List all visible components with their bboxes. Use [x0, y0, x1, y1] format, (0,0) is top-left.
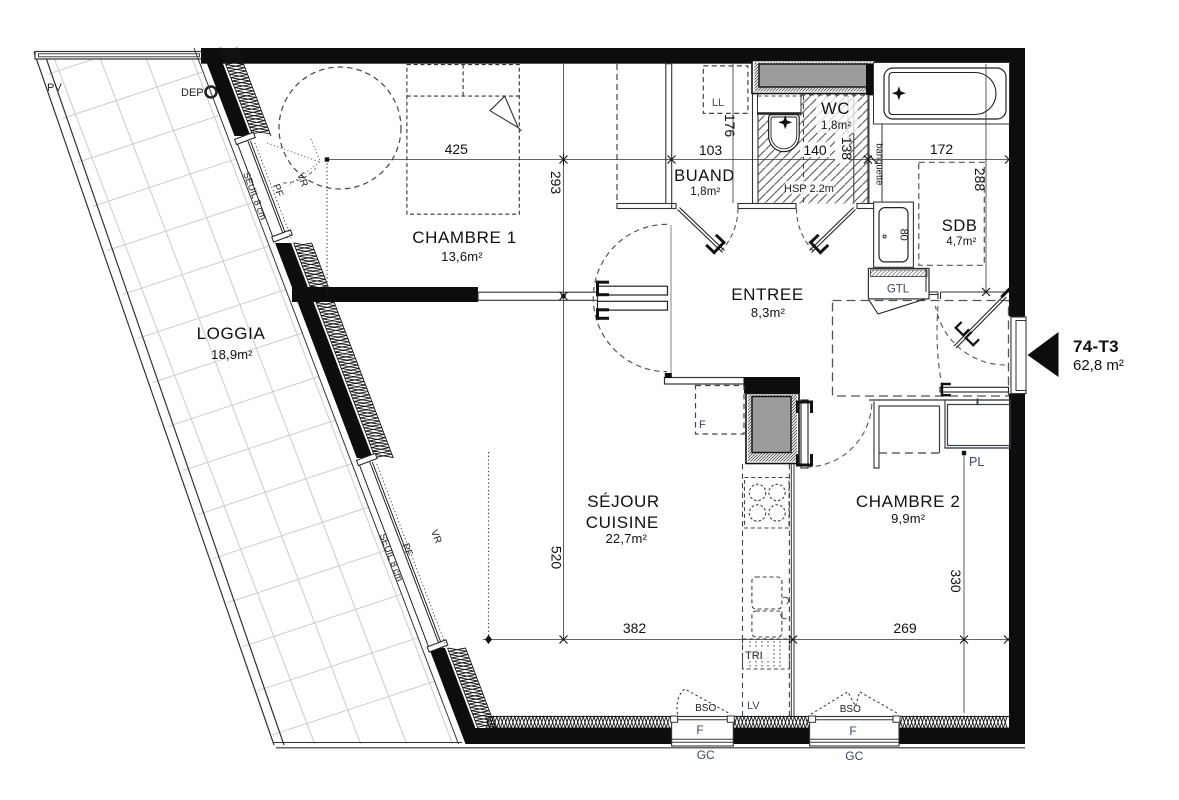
svg-text:74-T3: 74-T3 — [1073, 337, 1119, 356]
svg-text:DEP: DEP — [181, 87, 204, 99]
svg-text:80: 80 — [898, 229, 910, 241]
svg-text:4,7m²: 4,7m² — [946, 236, 976, 248]
svg-text:SÉJOUR: SÉJOUR — [587, 492, 660, 511]
svg-text:8,3m²: 8,3m² — [751, 305, 786, 320]
svg-text:BSO: BSO — [840, 704, 861, 715]
svg-text:140: 140 — [803, 142, 827, 158]
svg-text:288: 288 — [972, 168, 988, 192]
svg-text:382: 382 — [623, 620, 647, 636]
svg-text:18,9m²: 18,9m² — [211, 347, 253, 362]
svg-text:HSP 2.2m: HSP 2.2m — [784, 183, 834, 195]
svg-text:103: 103 — [699, 142, 723, 158]
svg-text:9,9m²: 9,9m² — [891, 511, 926, 526]
svg-text:172: 172 — [930, 141, 954, 157]
svg-text:ENTREE: ENTREE — [731, 285, 804, 304]
svg-text:GC: GC — [845, 749, 863, 763]
svg-text:1,8m²: 1,8m² — [821, 120, 851, 132]
svg-text:176: 176 — [722, 114, 738, 138]
svg-text:LOGGIA: LOGGIA — [197, 324, 266, 343]
svg-text:banquette: banquette — [874, 143, 885, 185]
svg-text:F: F — [849, 724, 856, 738]
svg-text:GC: GC — [697, 748, 715, 762]
svg-text:F: F — [699, 419, 706, 431]
svg-text:293: 293 — [548, 171, 564, 195]
svg-text:TRI: TRI — [745, 650, 763, 662]
svg-text:LL: LL — [712, 97, 724, 109]
svg-text:CUISINE: CUISINE — [586, 513, 659, 532]
svg-text:BUAND: BUAND — [674, 167, 735, 185]
svg-text:LV: LV — [747, 700, 760, 712]
svg-text:PV: PV — [47, 82, 62, 94]
svg-text:425: 425 — [445, 141, 469, 157]
svg-text:PL: PL — [969, 455, 984, 469]
svg-text:22,7m²: 22,7m² — [605, 531, 647, 546]
svg-text:CHAMBRE 2: CHAMBRE 2 — [856, 492, 961, 511]
svg-text:BSO: BSO — [695, 703, 716, 714]
svg-text:62,8 m²: 62,8 m² — [1073, 357, 1124, 374]
svg-text:269: 269 — [893, 620, 917, 636]
svg-text:13,6m²: 13,6m² — [441, 249, 483, 264]
svg-text:1,8m²: 1,8m² — [690, 186, 720, 198]
svg-text:GTL: GTL — [887, 284, 910, 296]
svg-text:330: 330 — [948, 569, 964, 593]
svg-text:520: 520 — [549, 546, 565, 570]
svg-text:CHAMBRE 1: CHAMBRE 1 — [412, 228, 517, 247]
svg-text:WC: WC — [821, 100, 850, 118]
svg-text:F: F — [696, 723, 703, 737]
svg-text:138: 138 — [839, 137, 855, 161]
svg-text:SDB: SDB — [942, 217, 978, 235]
